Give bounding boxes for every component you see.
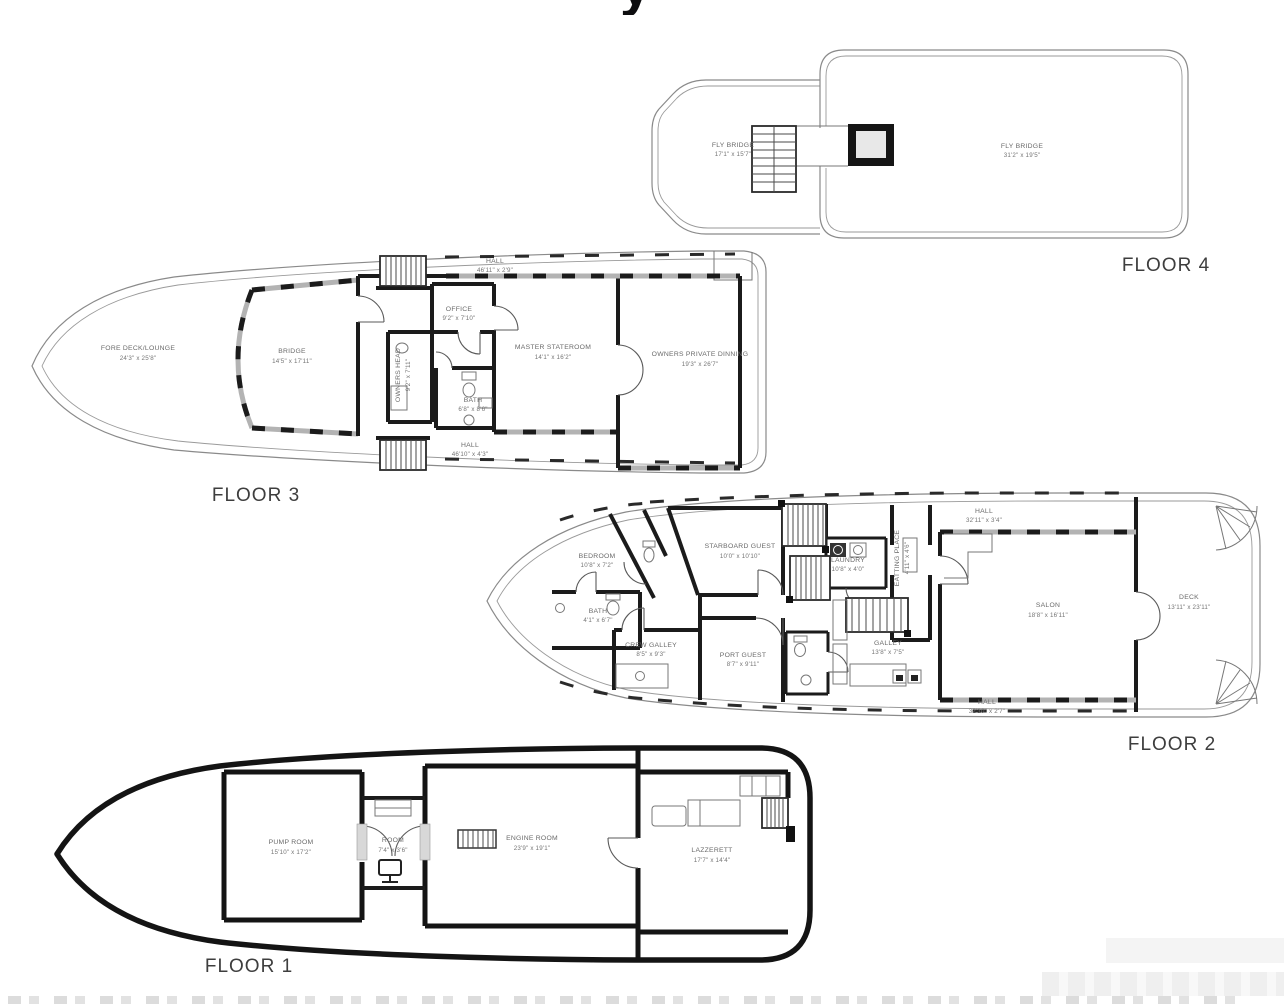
room-dims-pump-room: 15'10" x 17'2" bbox=[271, 849, 311, 856]
floor3-label: FLOOR 3 bbox=[212, 485, 300, 506]
room-label-port-guest: PORT GUEST bbox=[720, 652, 766, 659]
floor1-plan: PUMP ROOM 15'10" x 17'2" ROOM 7'4" x 3'6… bbox=[57, 748, 810, 977]
room-label-master-stateroom: MASTER STATEROOM bbox=[515, 344, 591, 351]
stairs-icon bbox=[752, 126, 796, 192]
room-label-owners-head: OWNERS HEAD bbox=[395, 348, 402, 402]
floor4-label: FLOOR 4 bbox=[1122, 255, 1210, 276]
room-dims-hall2-top: 32'11" x 3'4" bbox=[966, 517, 1002, 524]
room-label-room: ROOM bbox=[382, 837, 404, 844]
room-dims-starboard-guest: 10'0" x 10'10" bbox=[720, 553, 760, 560]
room-label-eatting-place: EATTING PLACE bbox=[894, 530, 901, 587]
room-dims-owners-head: 9'2" x 7'11" bbox=[405, 359, 412, 391]
room-label-bath2: BATH bbox=[589, 608, 608, 615]
room-dims-fore-deck: 24'3" x 25'8" bbox=[120, 355, 157, 362]
room-label-bridge: BRIDGE bbox=[278, 348, 306, 355]
room-label-engine-room: ENGINE ROOM bbox=[506, 835, 558, 842]
floor3-plan: FORE DECK/LOUNGE 24'3" x 25'8" BRIDGE 14… bbox=[32, 251, 766, 506]
room-dims-bath3: 6'8" x 8'6" bbox=[458, 406, 487, 413]
room-label-pump-room: PUMP ROOM bbox=[269, 839, 314, 846]
room-label-hall2-top: HALL bbox=[975, 508, 993, 515]
room-dims-eatting-place: 4'11" x 4'6" bbox=[904, 542, 911, 574]
room-dims-salon: 18'8" x 16'11" bbox=[1028, 612, 1068, 619]
floor2-plan: BEDROOM 10'8" x 7'2" STARBOARD GUEST 10'… bbox=[487, 493, 1260, 755]
room-dims-deck: 13'11" x 23'11" bbox=[1168, 604, 1211, 611]
room-dims-owners-dining: 19'3" x 26'7" bbox=[682, 361, 719, 368]
room-label-office: OFFICE bbox=[446, 306, 473, 313]
room-label-galley: GALLEY bbox=[874, 640, 902, 647]
yacht-floorplans: FLY BRIDGE 17'1" x 15'7" FLY BRIDGE 31'2… bbox=[0, 0, 1284, 1004]
floorplan-canvas: y FLY BRIDGE 17'1" x 15'7" bbox=[0, 0, 1284, 1004]
room-dims-galley: 13'8" x 7'5" bbox=[872, 649, 905, 656]
room-label-starboard-guest: STARBOARD GUEST bbox=[705, 543, 776, 550]
room-dims-room: 7'4" x 3'6" bbox=[378, 847, 407, 854]
room-label-owners-dining: OWNERS PRIVATE DINNING bbox=[652, 351, 749, 358]
room-dims-fly-bridge-aft: 31'2" x 19'5" bbox=[1004, 152, 1041, 159]
room-label-deck: DECK bbox=[1179, 594, 1199, 601]
room-dims-fly-bridge-fwd: 17'1" x 15'7" bbox=[715, 151, 752, 158]
room-dims-port-guest: 8'7" x 9'11" bbox=[727, 661, 759, 668]
room-label-fly-bridge-aft: FLY BRIDGE bbox=[1001, 143, 1044, 150]
hatch-icon bbox=[848, 124, 894, 166]
room-label-hall2-bottom: HALL bbox=[978, 699, 996, 706]
room-dims-hall-top: 46'11" x 2'9" bbox=[477, 267, 513, 274]
room-dims-engine-room: 23'9" x 19'1" bbox=[514, 845, 551, 852]
floor4-plan: FLY BRIDGE 17'1" x 15'7" FLY BRIDGE 31'2… bbox=[652, 50, 1210, 276]
room-dims-master-stateroom: 14'1" x 16'2" bbox=[535, 354, 572, 361]
cutoff-text-strip bbox=[8, 996, 1248, 1004]
room-dims-bath2: 4'1" x 6'7" bbox=[583, 617, 612, 624]
room-label-crew-galley: CREW GALLEY bbox=[625, 642, 677, 649]
room-dims-crew-galley: 8'5" x 9'3" bbox=[636, 651, 665, 658]
room-label-bedroom: BEDROOM bbox=[579, 553, 616, 560]
room-dims-office: 9'2" x 7'10" bbox=[443, 315, 476, 322]
room-label-fore-deck: FORE DECK/LOUNGE bbox=[101, 345, 175, 352]
room-label-hall-bottom: HALL bbox=[461, 442, 479, 449]
room-dims-hall2-bottom: 32'10" x 2'7" bbox=[969, 708, 1006, 715]
watermark-faint bbox=[1042, 972, 1284, 996]
room-label-hall-top: HALL bbox=[486, 258, 504, 265]
room-label-salon: SALON bbox=[1036, 602, 1060, 609]
room-label-fly-bridge-fwd: FLY BRIDGE bbox=[712, 142, 755, 149]
floor2-label: FLOOR 2 bbox=[1128, 734, 1216, 755]
room-dims-laundry: 10'8" x 4'0" bbox=[832, 566, 865, 573]
room-dims-bedroom: 10'8" x 7'2" bbox=[581, 562, 614, 569]
room-label-lazzerett: LAZZERETT bbox=[691, 847, 732, 854]
room-dims-bridge: 14'5" x 17'11" bbox=[272, 358, 312, 365]
room-dims-hall-bottom: 46'10" x 4'3" bbox=[452, 451, 489, 458]
floor1-label: FLOOR 1 bbox=[205, 956, 293, 977]
watermark-faint bbox=[1106, 938, 1284, 963]
room-dims-lazzerett: 17'7" x 14'4" bbox=[694, 857, 731, 864]
room-label-bath3: BATH bbox=[464, 397, 483, 404]
room-label-laundry: LAUNDRY bbox=[831, 557, 865, 564]
